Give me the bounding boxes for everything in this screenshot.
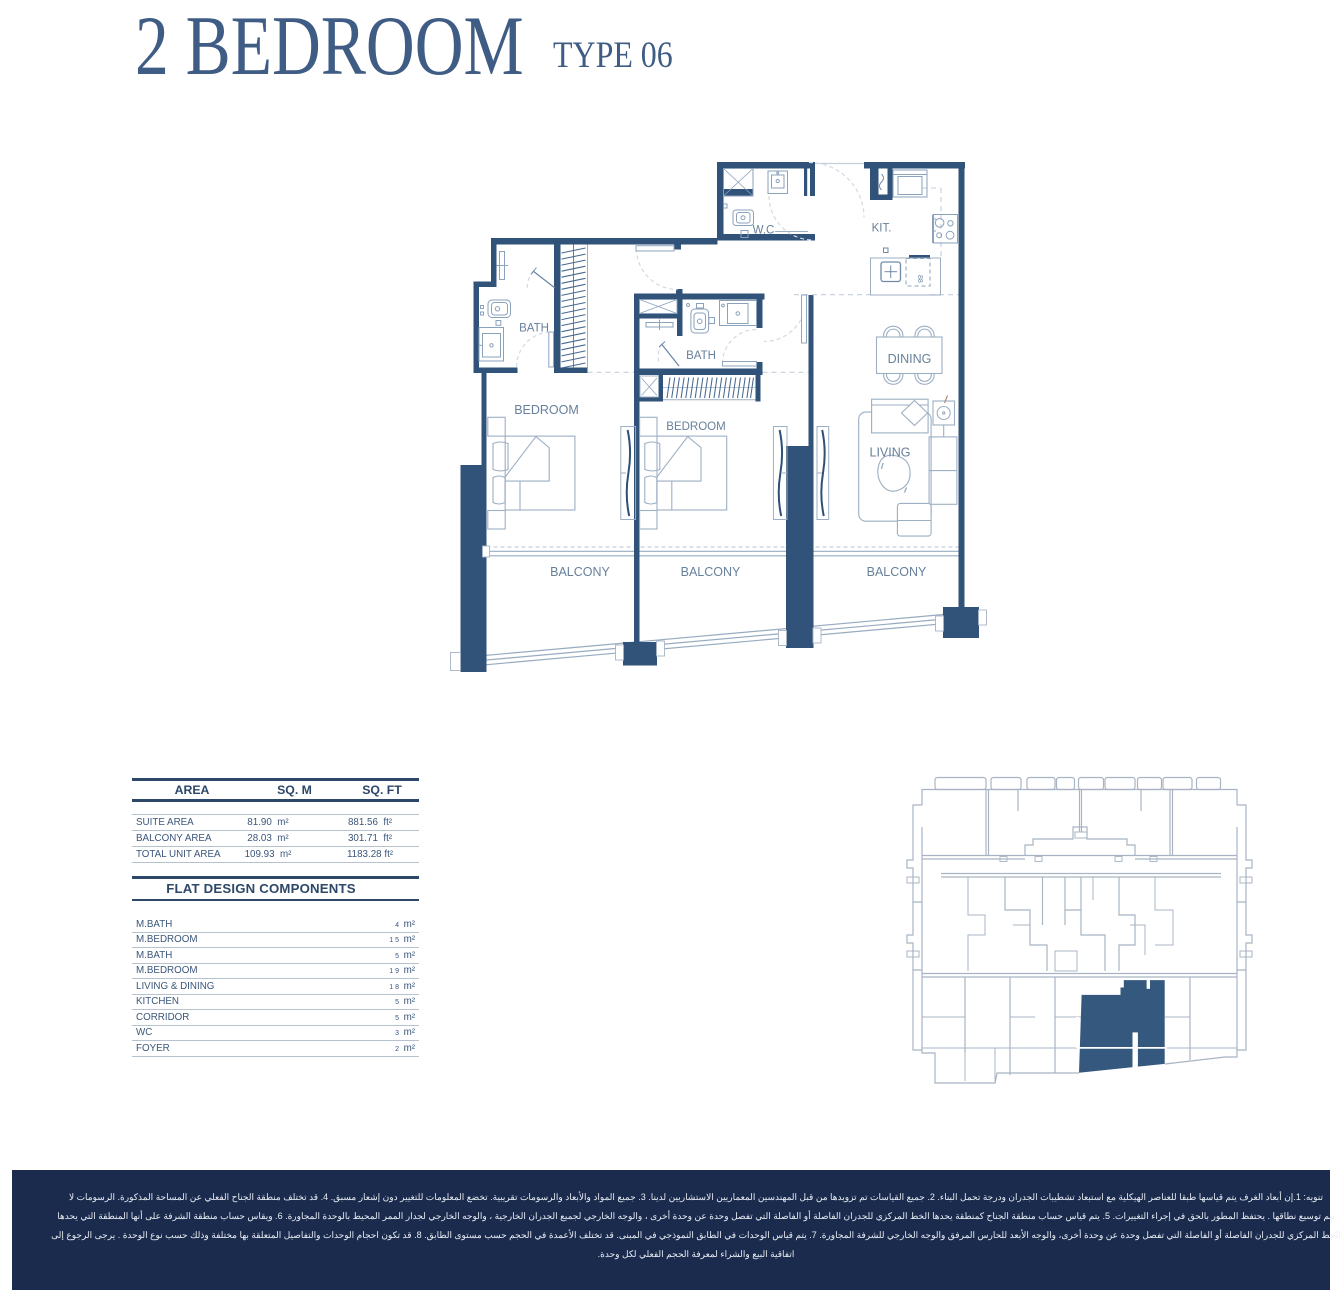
svg-text:BATH: BATH [686, 350, 716, 362]
svg-text:BALCONY: BALCONY [867, 565, 927, 579]
svg-text:DINING: DINING [888, 352, 932, 366]
svg-text:88: 88 [916, 275, 923, 283]
svg-text:W.C: W.C [753, 225, 775, 237]
svg-text:BATH: BATH [519, 323, 549, 335]
svg-text:BALCONY: BALCONY [681, 565, 741, 579]
svg-text:BEDROOM: BEDROOM [514, 403, 579, 417]
svg-text:BALCONY: BALCONY [550, 565, 610, 579]
svg-text:KIT.: KIT. [872, 223, 892, 235]
svg-text:BEDROOM: BEDROOM [666, 421, 725, 433]
svg-text:LIVING: LIVING [870, 446, 911, 460]
